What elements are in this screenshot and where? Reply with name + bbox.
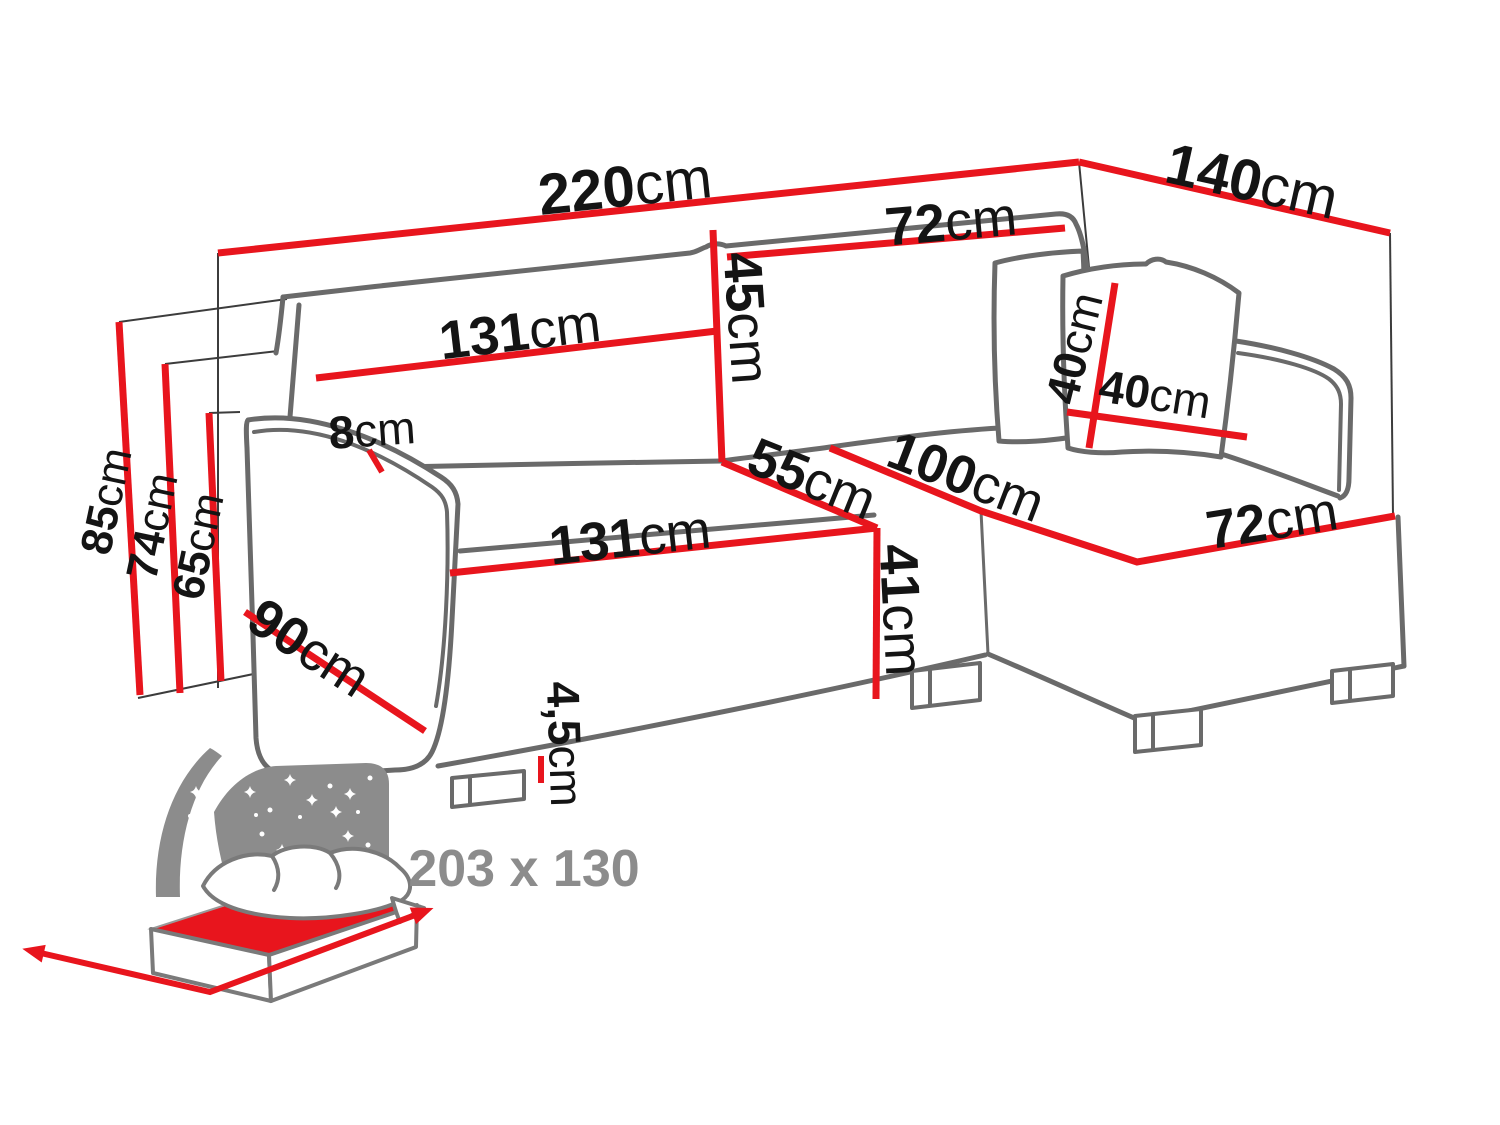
leg-chaise-right <box>1332 664 1393 703</box>
label-total-depth: 140cm <box>1160 130 1344 231</box>
star-icon <box>268 808 273 813</box>
star-icon <box>298 815 302 819</box>
star-icon <box>366 843 371 848</box>
chaise-rear-left-edge <box>981 511 988 654</box>
label-seat-height: 41cm <box>868 542 935 677</box>
label-seat-front-width: 131cm <box>546 499 714 576</box>
star-icon <box>368 776 373 781</box>
armrest-back-edge <box>290 305 299 417</box>
frame-right-vertical <box>1390 233 1393 516</box>
label-backrest-right-width: 72cm <box>883 186 1020 257</box>
arrowhead-left-icon <box>22 945 45 963</box>
leg-chaise-front <box>1135 709 1201 752</box>
star-icon <box>328 784 333 789</box>
diagram-canvas: 220cm 140cm 131cm 45cm 72cm 40cm 40cm 55… <box>0 0 1500 1125</box>
label-sleeping-area: 203 x 130 <box>408 840 639 898</box>
label-armrest-top-width: 8cm <box>327 401 417 459</box>
backrest-left-edge <box>276 297 283 353</box>
chaise-right-edge <box>1398 517 1404 666</box>
height65-connector <box>209 412 240 413</box>
star-icon <box>254 813 258 817</box>
star-icon <box>0 0 6 6</box>
duvet <box>203 847 410 919</box>
leg-front-left <box>452 771 524 807</box>
label-backrest-height: 45cm <box>711 250 780 386</box>
label-total-width: 220cm <box>535 145 715 228</box>
height85-connector <box>119 299 287 322</box>
star-icon <box>356 810 360 814</box>
chaise-bottom-left-edge <box>988 654 1141 721</box>
star-icon <box>194 836 206 848</box>
sofa-dimension-diagram: 220cm 140cm 131cm 45cm 72cm 40cm 40cm 55… <box>0 0 1500 1125</box>
label-backrest-width: 131cm <box>436 293 604 372</box>
right-armrest-piping <box>1238 353 1341 490</box>
height74-connector <box>165 351 278 364</box>
star-icon <box>188 814 192 818</box>
star-icon <box>190 864 194 868</box>
label-leg-height: 4,5cm <box>537 680 593 807</box>
star-icon <box>260 832 265 837</box>
label-chaise-front-width: 72cm <box>1202 481 1342 561</box>
